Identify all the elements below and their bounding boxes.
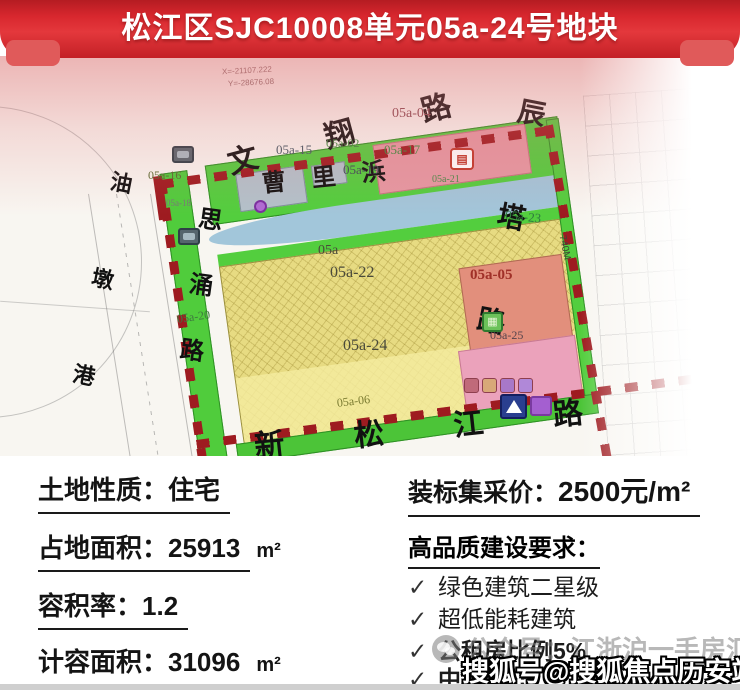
info-label: 容积率： <box>38 591 142 621</box>
check-icon: ✓ <box>408 574 438 601</box>
requirement-item: ✓绿色建筑二星级 <box>408 568 599 602</box>
zoning-map: 文翔路 辰塔路 新松江路 思涌路 油墩港 曹里浜 X=-21107.222 Y=… <box>0 56 740 462</box>
requirement-text: 超低能耗建筑 <box>438 606 576 632</box>
info-row-plot-ratio: 容积率：1.2 <box>38 586 188 630</box>
requirement-text: 绿色建筑二星级 <box>438 574 599 600</box>
parcel-label: 05a-18 <box>166 198 191 208</box>
school-triangle-icon <box>500 394 527 419</box>
info-row-deco-price: 装标集采价：2500元/m² <box>408 470 700 517</box>
title-banner: 松江区SJC10008单元05a-24号地块 <box>0 0 740 58</box>
parcel-label: 05a-17 <box>384 142 420 158</box>
parcel-label: 05a-22 <box>330 264 374 282</box>
facility-icon <box>172 146 194 163</box>
unit-label: m² <box>256 540 280 562</box>
culture-icon <box>500 378 515 393</box>
requirement-item: ✓超低能耗建筑 <box>408 600 576 634</box>
unit-label: m² <box>256 654 280 676</box>
bottom-gray-bar <box>0 684 740 690</box>
info-value: 31096 <box>168 647 240 677</box>
info-value: 25913 <box>168 533 240 563</box>
info-label: 土地性质： <box>38 475 168 505</box>
clinic-icon <box>482 378 497 393</box>
facility-icon-row <box>464 378 533 393</box>
community-icon <box>518 378 533 393</box>
parcel-label: 05a-16 <box>148 168 181 183</box>
page-title: 松江区SJC10008单元05a-24号地块 <box>0 0 740 58</box>
check-icon: ✓ <box>408 606 438 633</box>
requirements-title: 高品质建设要求： <box>408 528 600 569</box>
parcel-label: 05a-24 <box>343 337 387 355</box>
info-label: 装标集采价： <box>408 479 558 507</box>
coordinate-label-y: Y=-28676.08 <box>228 77 274 88</box>
info-value: 住宅 <box>168 475 220 505</box>
metro-purple-icon <box>254 200 267 213</box>
parcel-label: 05a-05 <box>470 267 513 284</box>
coordinate-label-x: X=-21107.222 <box>222 65 272 77</box>
info-label: 占地面积： <box>38 533 168 563</box>
info-row-capacity-area: 计容面积：31096m² <box>38 642 281 686</box>
hospital-icon <box>464 378 479 393</box>
parcel-label: 05a-21 <box>432 174 460 185</box>
purple-facility-icon <box>530 396 552 416</box>
parcel-label: 05a-02 <box>326 136 359 151</box>
info-row-land-area: 占地面积：25913m² <box>38 528 281 572</box>
parcel-label: 05a-19 <box>343 162 379 178</box>
parcel-label: 05a-15 <box>276 142 312 158</box>
parcel-label: 05a <box>318 243 338 259</box>
school-book-icon: ▤ <box>450 148 474 170</box>
info-value: 2500元/m² <box>558 476 690 507</box>
facility-icon <box>178 228 200 245</box>
info-value: 1.2 <box>142 591 178 621</box>
parcel-label: 05a-04 <box>392 106 431 122</box>
info-row-land-nature: 土地性质：住宅 <box>38 470 230 514</box>
kindergarten-icon: ▦ <box>482 312 503 332</box>
info-label: 计容面积： <box>38 647 168 677</box>
wechat-icon <box>432 635 460 663</box>
